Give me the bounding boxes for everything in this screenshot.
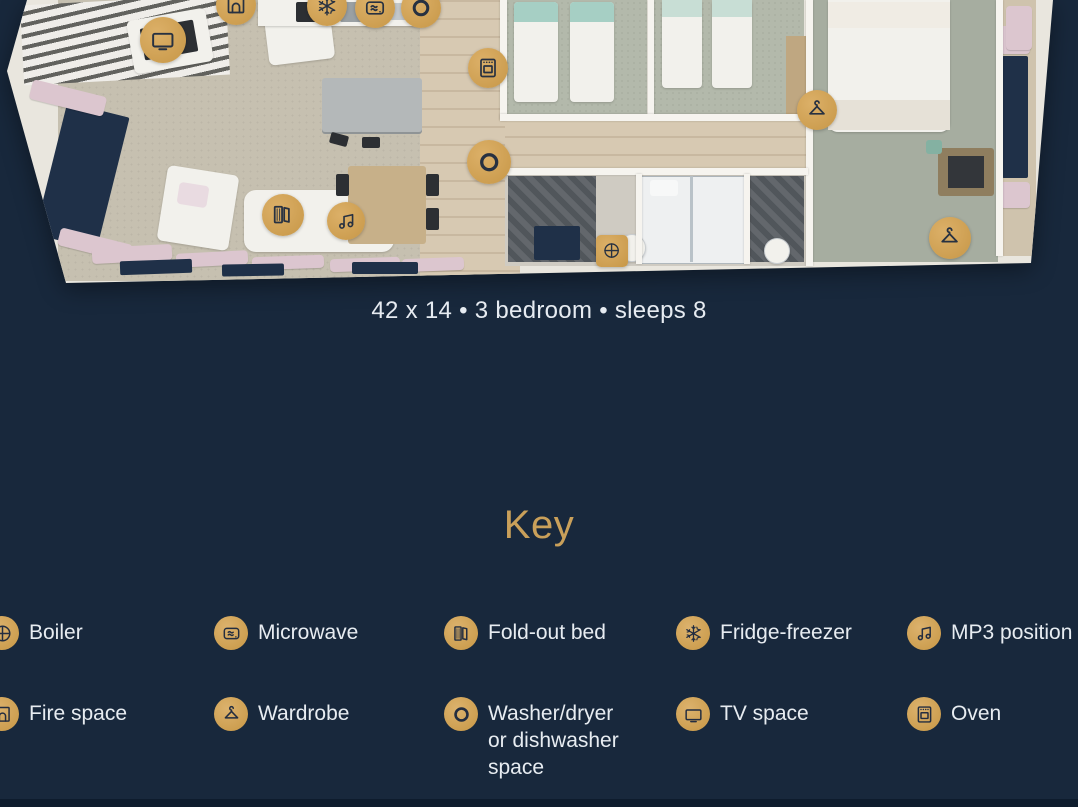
key-item-fridge-freezer: Fridge-freezer (676, 616, 852, 650)
key-item-washer-dryer: Washer/dryer or dishwasher space (444, 697, 628, 781)
key-item-fire-space: Fire space (0, 697, 127, 731)
key-item-boiler: Boiler (0, 616, 83, 650)
oven-icon (907, 697, 941, 731)
washer-marker-icon (467, 140, 511, 184)
boiler-icon (0, 616, 19, 650)
key-item-wardrobe: Wardrobe (214, 697, 349, 731)
tv-marker-icon (140, 17, 186, 63)
key-item-label: MP3 position (951, 619, 1072, 646)
tv-space-icon (676, 697, 710, 731)
key-item-label: Fire space (29, 700, 127, 727)
fridge-marker-icon (307, 0, 347, 26)
boiler-marker-icon (596, 235, 628, 267)
key-item-tv-space: TV space (676, 697, 809, 731)
microwave-icon (214, 616, 248, 650)
fire-space-icon (0, 697, 19, 731)
key-item-label: Microwave (258, 619, 358, 646)
fridge-freezer-icon (676, 616, 710, 650)
floorplan-image (0, 0, 1078, 292)
key-item-mp3-position: MP3 position (907, 616, 1072, 650)
key-item-label: Fold-out bed (488, 619, 606, 646)
washer-dryer-icon (444, 697, 478, 731)
floorplan-markers (0, 0, 1078, 292)
mp3-marker-icon (327, 202, 365, 240)
foldbed-marker-icon (262, 194, 304, 236)
key-item-label: TV space (720, 700, 809, 727)
key-item-label: Wardrobe (258, 700, 349, 727)
wardrobe-icon (214, 697, 248, 731)
key-item-fold-out-bed: Fold-out bed (444, 616, 606, 650)
key-item-label: Boiler (29, 619, 83, 646)
key-item-label: Fridge-freezer (720, 619, 852, 646)
oven-marker-icon (468, 48, 508, 88)
fire-marker-icon (216, 0, 256, 25)
washer-marker-icon (401, 0, 441, 28)
wardrobe-marker-icon (929, 217, 971, 259)
key-title: Key (0, 503, 1078, 548)
microwave-marker-icon (355, 0, 395, 28)
mp3-position-icon (907, 616, 941, 650)
key-item-oven: Oven (907, 697, 1001, 731)
key-item-label: Oven (951, 700, 1001, 727)
key-item-label: Washer/dryer or dishwasher space (488, 700, 628, 781)
wardrobe-marker-icon (797, 90, 837, 130)
fold-out-bed-icon (444, 616, 478, 650)
floorplan-caption: 42 x 14 • 3 bedroom • sleeps 8 (0, 297, 1078, 325)
page-bottom-edge (0, 799, 1078, 807)
key-item-microwave: Microwave (214, 616, 358, 650)
